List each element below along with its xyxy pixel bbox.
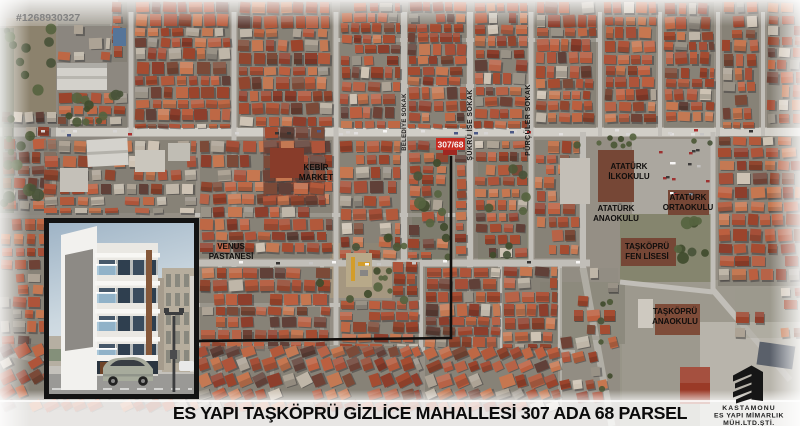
svg-text:ES YAPI MİMARLIK: ES YAPI MİMARLIK [714,412,784,420]
svg-text:KASTAMONU: KASTAMONU [722,405,776,412]
svg-text:ES YAPI TAŞKÖPRÜ GİZLİCE MAHAL: ES YAPI TAŞKÖPRÜ GİZLİCE MAHALLESİ 307 A… [173,403,688,423]
svg-text:#1268930327: #1268930327 [16,12,80,24]
svg-text:MÜH.LTD.ŞTİ.: MÜH.LTD.ŞTİ. [723,418,775,426]
